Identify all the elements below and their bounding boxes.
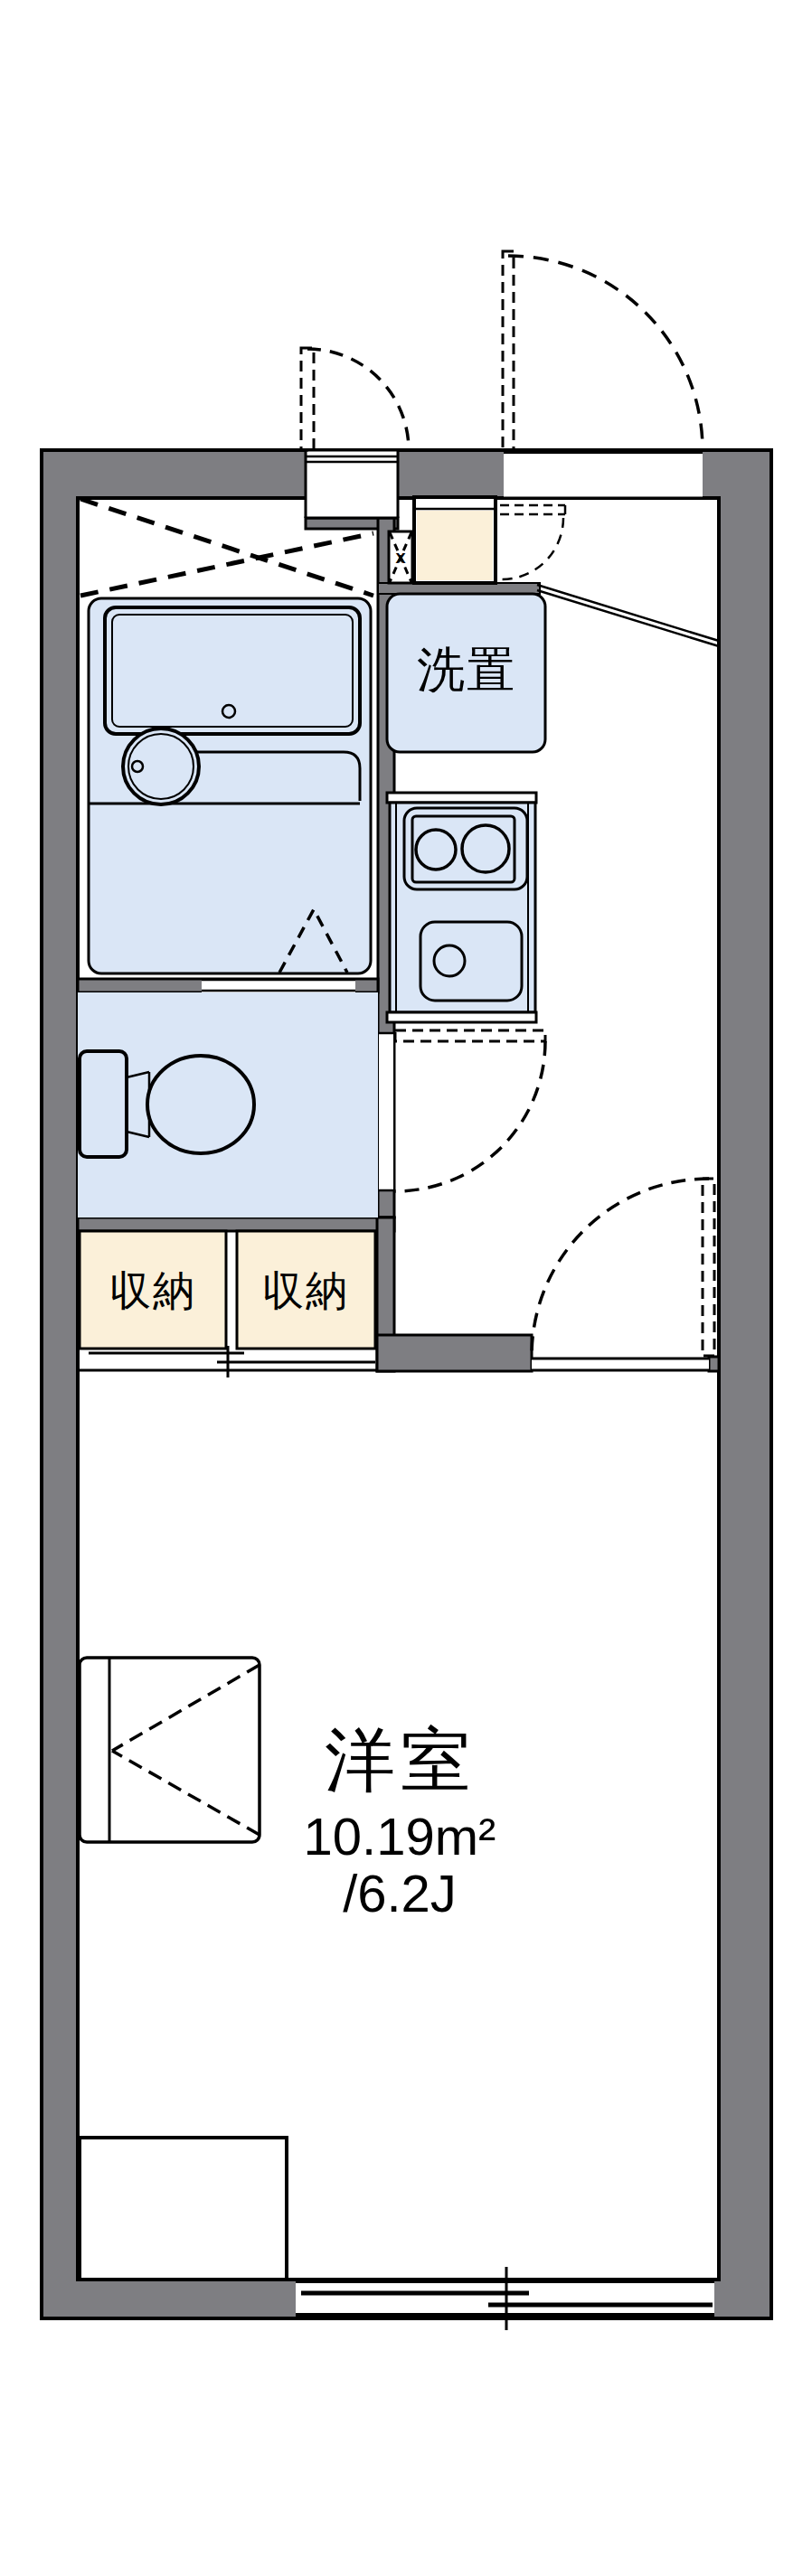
bathtub-drain: [222, 705, 235, 718]
main-room-label: 洋室: [310, 1725, 491, 1795]
closet-sliding-door: [78, 1346, 377, 1377]
toilet-bowl: [147, 1056, 254, 1153]
main-room-area-tatami: /6.2J: [287, 1867, 513, 1920]
entrance-opening: [504, 452, 703, 498]
stove-burner-left: [416, 830, 456, 870]
bathroom-window-niche: [306, 450, 398, 518]
room-door-opening: [532, 1359, 709, 1370]
sink-drain: [434, 945, 465, 976]
entrance-door-arc: [503, 251, 703, 450]
room-door-arc: [532, 1179, 714, 1356]
storage-label-right: 収納: [238, 1270, 373, 1312]
toilet-door-opening: [378, 1033, 394, 1190]
desk: [80, 2138, 287, 2280]
bed: [80, 1658, 260, 1842]
bathtub: [105, 607, 360, 734]
washbasin-faucet: [132, 761, 143, 772]
pipe-shaft-mark: x: [389, 548, 412, 566]
stove: [404, 808, 527, 889]
toilet-tank: [80, 1051, 127, 1157]
toilet-door-arc: [395, 1030, 545, 1191]
balcony-window: [296, 2267, 714, 2330]
genkan-step-line: [537, 585, 719, 646]
toilet: [80, 1051, 254, 1157]
floorplan-page: 洋室 10.19m² /6.2J 収納 収納 洗置 x: [0, 0, 812, 2576]
hall-door-arc: [500, 505, 565, 579]
stove-burner-right: [462, 825, 509, 872]
main-room-area-sqm: 10.19m²: [287, 1810, 513, 1863]
kitchen-sink: [420, 922, 522, 1001]
shoe-cabinet: [414, 497, 496, 583]
laundry-space-label: 洗置: [399, 645, 534, 693]
washbasin: [123, 729, 199, 804]
kitchen-counter: [387, 793, 536, 1022]
secondary-exterior-door-arc: [301, 348, 409, 450]
storage-label-left: 収納: [85, 1270, 221, 1312]
bathroom-door-opening: [202, 979, 355, 992]
